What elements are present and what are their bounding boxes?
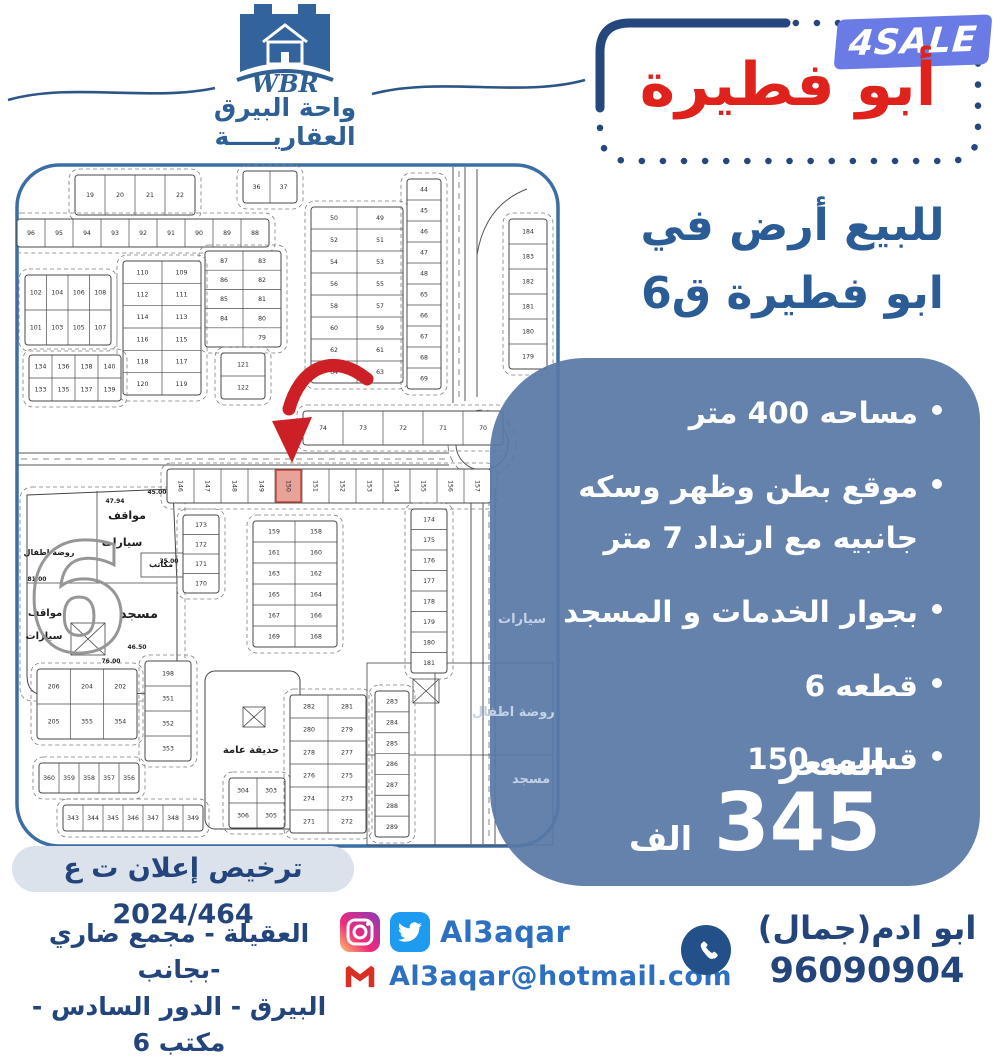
contact-block: ابو ادم(جمال) 96090904 [680, 908, 990, 992]
svg-text:285: 285 [386, 740, 398, 747]
svg-text:150: 150 [284, 480, 291, 492]
svg-text:137: 137 [81, 387, 93, 394]
svg-text:112: 112 [137, 292, 149, 299]
svg-text:84: 84 [220, 315, 228, 322]
svg-text:57: 57 [376, 303, 384, 310]
svg-text:284: 284 [386, 719, 398, 726]
svg-text:159: 159 [268, 529, 280, 536]
license-badge: ترخيص إعلان ت ع 2024/464 [12, 846, 354, 892]
svg-text:287: 287 [386, 782, 398, 789]
svg-text:282: 282 [303, 704, 315, 711]
heading-line2: ابو فطيرة ق6 [600, 260, 985, 328]
svg-text:146: 146 [176, 480, 183, 492]
svg-text:37: 37 [280, 184, 288, 191]
map-block: 146147148149150151152153154155156157 [161, 463, 497, 509]
svg-text:67: 67 [420, 334, 428, 341]
logo-castle-icon: WBR [230, 0, 340, 94]
svg-text:111: 111 [176, 292, 188, 299]
svg-text:54: 54 [330, 259, 338, 266]
svg-text:273: 273 [341, 796, 353, 803]
svg-text:272: 272 [341, 819, 353, 826]
svg-text:281: 281 [341, 704, 353, 711]
bullet-dot-icon [932, 678, 942, 688]
svg-text:198: 198 [162, 671, 174, 678]
svg-text:169: 169 [268, 634, 280, 641]
svg-text:50: 50 [330, 215, 338, 222]
svg-text:279: 279 [341, 727, 353, 734]
svg-text:353: 353 [162, 746, 174, 753]
svg-text:109: 109 [176, 269, 188, 276]
svg-text:52: 52 [330, 237, 338, 244]
svg-text:147: 147 [203, 480, 210, 492]
instagram-icon[interactable] [340, 912, 380, 952]
svg-text:91: 91 [167, 230, 175, 237]
bullet-dot-icon [932, 479, 942, 489]
social-links: Al3aqar Al3aqar@hotmail.com [340, 910, 732, 998]
map-block: 198351352353 [139, 655, 197, 767]
map-block: 174175176177178179180181 [405, 503, 453, 679]
svg-text:346: 346 [127, 815, 139, 822]
svg-text:81: 81 [258, 296, 266, 303]
svg-text:107: 107 [94, 325, 106, 332]
svg-text:48: 48 [420, 271, 428, 278]
svg-text:153: 153 [365, 480, 372, 492]
map-block: 173172171170 [177, 509, 225, 599]
bullet-text: مساحه 400 متر [689, 388, 918, 440]
svg-text:152: 152 [338, 480, 345, 492]
svg-text:89: 89 [223, 230, 231, 237]
svg-text:86: 86 [220, 277, 228, 284]
svg-text:355: 355 [81, 719, 93, 726]
office-address: العقيلة - مجمع ضاري -بجانب البيرق - الدو… [18, 916, 340, 1061]
brand-name-line1: واحة البيرق [200, 94, 370, 123]
svg-text:283: 283 [386, 699, 398, 706]
svg-text:108: 108 [94, 290, 106, 297]
address-line2: البيرق - الدور السادس - مكتب 6 [18, 989, 340, 1061]
svg-text:179: 179 [423, 619, 435, 626]
svg-text:115: 115 [176, 336, 188, 343]
svg-text:68: 68 [420, 355, 428, 362]
svg-text:352: 352 [162, 721, 174, 728]
map-block: 304303306305 [223, 772, 291, 834]
map-block: 50495251545356555857605962616463 [305, 201, 409, 389]
svg-text:45: 45 [420, 208, 428, 215]
map-block: 878386828581848079 [199, 245, 287, 353]
map-block: 3637 [237, 165, 303, 209]
svg-text:87: 87 [220, 258, 228, 265]
listing-area-title: أبو فطيرة [598, 50, 978, 120]
block-number-watermark: 6 [25, 513, 129, 687]
svg-text:135: 135 [58, 387, 70, 394]
svg-text:96: 96 [27, 230, 35, 237]
svg-text:133: 133 [35, 387, 47, 394]
svg-text:47: 47 [420, 250, 428, 257]
svg-text:53: 53 [376, 259, 384, 266]
svg-text:177: 177 [423, 578, 435, 585]
wbr-logo: WBR واحة البيرق العقاريـــــة [200, 0, 370, 152]
bullet-text: موقع بطن وظهر وسكه جانبيه مع ارتداد 7 مت… [522, 462, 918, 565]
svg-text:181: 181 [423, 660, 435, 667]
map-ghost-label: روضة اطفال [472, 705, 555, 720]
svg-text:154: 154 [392, 480, 399, 492]
svg-text:70: 70 [479, 425, 487, 432]
map-block: 283284285286287288289 [369, 685, 415, 843]
svg-text:118: 118 [137, 359, 149, 366]
map-block: 343344345346347348349 [57, 799, 209, 837]
svg-text:46: 46 [420, 229, 428, 236]
svg-text:305: 305 [265, 813, 277, 820]
svg-text:171: 171 [195, 561, 207, 568]
svg-text:122: 122 [237, 385, 249, 392]
map-block: 184183182181180179 [503, 213, 553, 375]
svg-text:90: 90 [195, 230, 203, 237]
svg-text:113: 113 [176, 314, 188, 321]
svg-text:158: 158 [310, 529, 322, 536]
svg-text:71: 71 [439, 425, 447, 432]
svg-text:359: 359 [63, 775, 75, 782]
svg-text:358: 358 [83, 775, 95, 782]
svg-text:280: 280 [303, 727, 315, 734]
svg-text:157: 157 [473, 480, 480, 492]
svg-text:134: 134 [35, 364, 47, 371]
map-area-label: 35.00 [160, 558, 179, 565]
brand-name-line2: العقاريـــــة [200, 123, 370, 152]
svg-text:164: 164 [310, 592, 322, 599]
svg-text:36: 36 [253, 184, 261, 191]
svg-text:72: 72 [399, 425, 407, 432]
svg-text:286: 286 [386, 761, 398, 768]
phone-icon [680, 924, 732, 976]
map-area-label: حديقة عامة [223, 745, 279, 756]
svg-text:176: 176 [423, 557, 435, 564]
svg-text:289: 289 [386, 824, 398, 831]
twitter-icon[interactable] [390, 912, 430, 952]
bullet-dot-icon [932, 751, 942, 761]
svg-text:62: 62 [330, 347, 338, 354]
svg-text:65: 65 [420, 292, 428, 299]
svg-text:160: 160 [310, 550, 322, 557]
svg-text:149: 149 [257, 480, 264, 492]
svg-text:79: 79 [258, 335, 266, 342]
svg-text:44: 44 [420, 187, 428, 194]
bullet-item: موقع بطن وظهر وسكه جانبيه مع ارتداد 7 مت… [522, 462, 942, 565]
svg-text:85: 85 [220, 296, 228, 303]
svg-text:95: 95 [55, 230, 63, 237]
map-block: 102104106108101103105107 [19, 269, 117, 351]
bullet-text: قطعه 6 [805, 661, 918, 713]
svg-text:276: 276 [303, 773, 315, 780]
svg-text:93: 93 [111, 230, 119, 237]
svg-text:136: 136 [58, 364, 70, 371]
map-block: 7473727170 [297, 405, 509, 451]
bullet-item: قطعه 6 [522, 661, 942, 713]
bullet-item: مساحه 400 متر [522, 388, 942, 440]
svg-text:304: 304 [237, 788, 249, 795]
svg-text:174: 174 [423, 516, 435, 523]
svg-text:162: 162 [310, 571, 322, 578]
svg-text:181: 181 [522, 304, 534, 311]
svg-text:106: 106 [73, 290, 85, 297]
svg-text:156: 156 [446, 480, 453, 492]
svg-text:139: 139 [104, 387, 116, 394]
svg-text:74: 74 [319, 425, 327, 432]
bullet-dot-icon [932, 604, 942, 614]
bullet-item: بجوار الخدمات و المسجد [522, 587, 942, 639]
map-block: 282281280279278277276275274273271272 [284, 689, 372, 839]
listing-heading: للبيع أرض في ابو فطيرة ق6 [600, 192, 985, 328]
svg-text:275: 275 [341, 773, 353, 780]
svg-text:345: 345 [107, 815, 119, 822]
svg-text:116: 116 [137, 336, 149, 343]
map-block: 134136138140133135137139 [23, 349, 127, 407]
svg-text:80: 80 [258, 315, 266, 322]
svg-text:161: 161 [268, 550, 280, 557]
svg-text:306: 306 [237, 813, 249, 820]
map-block: 44454647486566676869 [401, 173, 447, 395]
phone-number[interactable]: 96090904 [744, 950, 990, 992]
svg-text:94: 94 [83, 230, 91, 237]
bullet-dot-icon [932, 405, 942, 415]
map-area-label: 47.94 [106, 498, 125, 505]
svg-text:49: 49 [376, 215, 384, 222]
svg-text:92: 92 [139, 230, 147, 237]
svg-text:140: 140 [104, 364, 116, 371]
svg-text:58: 58 [330, 303, 338, 310]
social-handle[interactable]: Al3aqar [440, 915, 570, 949]
svg-text:56: 56 [330, 281, 338, 288]
map-area-label: 45.00 [148, 489, 167, 496]
map-block: 969594939291908988 [15, 213, 275, 253]
map-ghost-label: سيارات [498, 612, 546, 627]
svg-text:278: 278 [303, 750, 315, 757]
svg-text:121: 121 [237, 362, 249, 369]
svg-text:356: 356 [123, 775, 135, 782]
logo-wbr-text: WBR [251, 69, 318, 94]
svg-text:180: 180 [423, 639, 435, 646]
map-block: 360359358357356 [33, 757, 145, 799]
svg-text:55: 55 [376, 281, 384, 288]
svg-text:179: 179 [522, 354, 534, 361]
svg-text:165: 165 [268, 592, 280, 599]
svg-text:66: 66 [420, 313, 428, 320]
svg-text:21: 21 [146, 192, 154, 199]
svg-text:166: 166 [310, 613, 322, 620]
svg-text:163: 163 [268, 571, 280, 578]
svg-text:151: 151 [311, 480, 318, 492]
svg-text:274: 274 [303, 796, 315, 803]
price-row: 345 الف [490, 783, 980, 863]
svg-text:175: 175 [423, 537, 435, 544]
svg-text:180: 180 [522, 329, 534, 336]
svg-text:83: 83 [258, 258, 266, 265]
svg-text:349: 349 [187, 815, 199, 822]
svg-text:178: 178 [423, 598, 435, 605]
cadastral-map: 1920212296959493929190898887838682858184… [15, 163, 560, 848]
agent-name: ابو ادم(جمال) [744, 908, 990, 950]
svg-text:104: 104 [51, 290, 63, 297]
svg-text:117: 117 [176, 359, 188, 366]
price-unit: الف [629, 819, 692, 858]
heading-line1: للبيع أرض في [600, 192, 985, 260]
svg-text:168: 168 [310, 634, 322, 641]
svg-text:114: 114 [137, 314, 149, 321]
map-block: 110109112111114113116115118117120119 [117, 255, 207, 401]
svg-text:60: 60 [330, 325, 338, 332]
map-area-label: 46.50 [128, 644, 147, 651]
svg-text:148: 148 [230, 480, 237, 492]
bullet-text: بجوار الخدمات و المسجد [563, 587, 918, 639]
address-line1: العقيلة - مجمع ضاري -بجانب [18, 916, 340, 989]
svg-text:69: 69 [420, 376, 428, 383]
svg-text:205: 205 [48, 719, 60, 726]
svg-text:183: 183 [522, 254, 534, 261]
svg-text:73: 73 [359, 425, 367, 432]
svg-text:271: 271 [303, 819, 315, 826]
svg-text:105: 105 [73, 325, 85, 332]
svg-text:354: 354 [114, 719, 126, 726]
svg-text:102: 102 [30, 290, 42, 297]
svg-text:348: 348 [167, 815, 179, 822]
svg-text:119: 119 [176, 381, 188, 388]
map-block: 159158161160163162165164167166169168 [247, 515, 343, 653]
details-panel: مساحه 400 متر موقع بطن وظهر وسكه جانبيه … [490, 358, 980, 886]
svg-text:184: 184 [522, 229, 534, 236]
svg-text:20: 20 [116, 192, 124, 199]
svg-text:110: 110 [137, 269, 149, 276]
svg-text:155: 155 [419, 480, 426, 492]
svg-text:351: 351 [162, 696, 174, 703]
svg-text:61: 61 [376, 347, 384, 354]
map-ghost-label: مسجد [512, 772, 550, 787]
svg-text:343: 343 [67, 815, 79, 822]
svg-text:51: 51 [376, 237, 384, 244]
svg-text:182: 182 [522, 279, 534, 286]
svg-text:303: 303 [265, 788, 277, 795]
svg-text:19: 19 [86, 192, 94, 199]
svg-text:63: 63 [376, 369, 384, 376]
svg-text:357: 357 [103, 775, 115, 782]
svg-text:344: 344 [87, 815, 99, 822]
svg-text:360: 360 [43, 775, 55, 782]
details-bullet-list: مساحه 400 متر موقع بطن وظهر وسكه جانبيه … [522, 388, 942, 786]
svg-text:172: 172 [195, 541, 207, 548]
svg-text:82: 82 [258, 277, 266, 284]
map-block: 121122 [215, 347, 271, 405]
svg-text:101: 101 [30, 325, 42, 332]
svg-text:138: 138 [81, 364, 93, 371]
svg-text:288: 288 [386, 803, 398, 810]
svg-text:22: 22 [176, 192, 184, 199]
svg-text:170: 170 [195, 580, 207, 587]
svg-text:88: 88 [251, 230, 259, 237]
svg-text:173: 173 [195, 522, 207, 529]
gmail-icon[interactable] [341, 957, 379, 995]
svg-text:103: 103 [51, 325, 63, 332]
svg-text:120: 120 [137, 381, 149, 388]
price-value: 345 [714, 783, 881, 863]
svg-text:59: 59 [376, 325, 384, 332]
svg-text:167: 167 [268, 613, 280, 620]
svg-text:347: 347 [147, 815, 159, 822]
svg-text:277: 277 [341, 750, 353, 757]
